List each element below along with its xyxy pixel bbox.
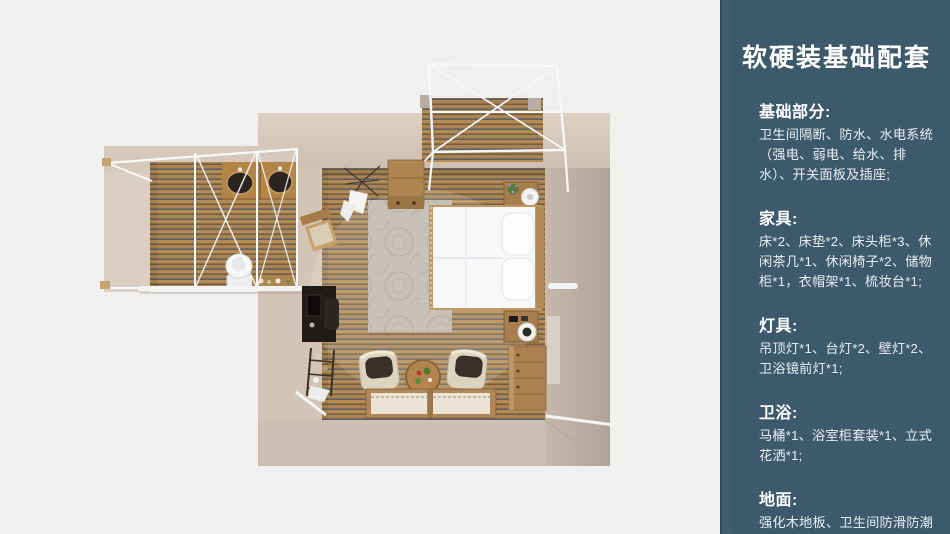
section-basics-body: 卫生间隔断、防水、水电系统（强电、弱电、给水、排水）、开关面板及插座;	[759, 125, 937, 185]
section-flooring-heading: 地面:	[759, 486, 936, 510]
section-basics: 基础部分: 卫生间隔断、防水、水电系统（强电、弱电、给水、排水）、开关面板及插座…	[759, 98, 936, 185]
nightstand-top	[504, 182, 539, 209]
pillow	[502, 213, 534, 255]
desk	[302, 286, 339, 342]
desk-chair	[324, 298, 339, 330]
section-lighting-heading: 灯具:	[759, 312, 936, 336]
info-panel: 软硬装基础配套 基础部分: 卫生间隔断、防水、水电系统（强电、弱电、给水、排水）…	[720, 0, 950, 534]
panel-sections: 基础部分: 卫生间隔断、防水、水电系统（强电、弱电、给水、排水）、开关面板及插座…	[742, 98, 936, 534]
armchair-left	[358, 350, 400, 392]
right-wall-door-panel	[547, 316, 560, 384]
section-flooring: 地面: 强化木地板、卫生间防滑防潮石塑板;	[759, 486, 936, 534]
section-lighting: 灯具: 吊顶灯*1、台灯*2、壁灯*2、卫浴镜前灯*1;	[759, 312, 936, 379]
section-furniture: 家具: 床*2、床垫*2、床头柜*3、休闲茶几*1、休闲椅子*2、储物柜*1，衣…	[759, 205, 936, 292]
nightstand-bottom	[504, 311, 538, 342]
floorplan-area	[0, 0, 722, 534]
wardrobe-cabinet	[388, 160, 424, 209]
double-sink-counter	[222, 162, 298, 200]
bed	[429, 205, 544, 310]
section-furniture-heading: 家具:	[759, 205, 936, 229]
headboard	[536, 207, 544, 308]
armchair-right	[446, 349, 488, 391]
toilet	[226, 254, 252, 288]
section-basics-heading: 基础部分:	[759, 98, 936, 122]
drawer-dresser	[509, 346, 546, 410]
floorplan-rendering	[0, 0, 722, 534]
section-bathroom-heading: 卫浴:	[759, 399, 936, 423]
low-window-table	[366, 389, 496, 418]
section-lighting-body: 吊顶灯*1、台灯*2、壁灯*2、卫浴镜前灯*1;	[759, 339, 937, 379]
section-furniture-body: 床*2、床垫*2、床头柜*3、休闲茶几*1、休闲椅子*2、储物柜*1，衣帽架*1…	[759, 232, 937, 292]
panel-title: 软硬装基础配套	[742, 38, 936, 74]
section-flooring-body: 强化木地板、卫生间防滑防潮石塑板;	[759, 513, 937, 534]
pillow	[502, 258, 534, 300]
bathroom	[100, 146, 310, 293]
section-bathroom: 卫浴: 马桶*1、浴室柜套装*1、立式花洒*1;	[759, 399, 936, 466]
section-bathroom-body: 马桶*1、浴室柜套装*1、立式花洒*1;	[759, 426, 937, 466]
